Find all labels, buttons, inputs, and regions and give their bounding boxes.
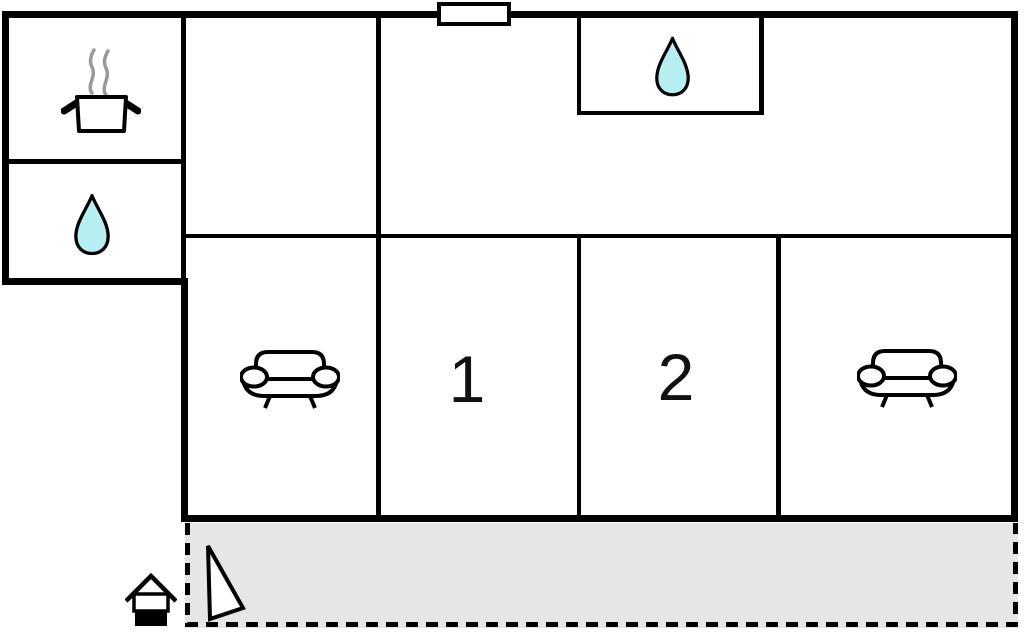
sofa-icon: [240, 347, 340, 409]
wall-shower-bottom: [577, 111, 764, 115]
wall-annex-main-divider: [181, 18, 186, 278]
window: [437, 2, 511, 26]
bedroom-1-label: 1: [449, 346, 486, 412]
wall-shower-left: [577, 18, 581, 111]
cooking-pot-icon: [61, 47, 141, 133]
sofa-icon: [857, 346, 957, 408]
wall-exterior-right: [1011, 11, 1018, 522]
wall-shower-right: [759, 18, 764, 115]
wall-center-vertical: [376, 18, 381, 515]
water-drop-icon: [654, 36, 691, 98]
wall-kitchen-bath-divider: [7, 159, 185, 164]
steam-line: [90, 50, 94, 93]
water-drop-icon: [73, 193, 111, 257]
wall-bedroom1-bedroom2-divider: [577, 238, 581, 515]
triangle-icon: [202, 542, 247, 622]
terrace: [185, 523, 1018, 628]
wall-exterior-bottom: [181, 515, 1018, 522]
wall-exterior-left-lower: [181, 278, 188, 522]
wall-annex-bottom: [2, 278, 188, 285]
steam-line: [104, 51, 108, 95]
wall-annex-left: [2, 11, 9, 285]
bedroom-2-label: 2: [658, 344, 695, 410]
wall-mid-horizontal: [186, 234, 1011, 238]
house-icon: [125, 573, 177, 628]
wall-bedroom2-lounge-divider: [776, 238, 781, 515]
terrace-dashed-border: [185, 523, 1018, 628]
floor-plan: 1 2: [0, 0, 1024, 632]
